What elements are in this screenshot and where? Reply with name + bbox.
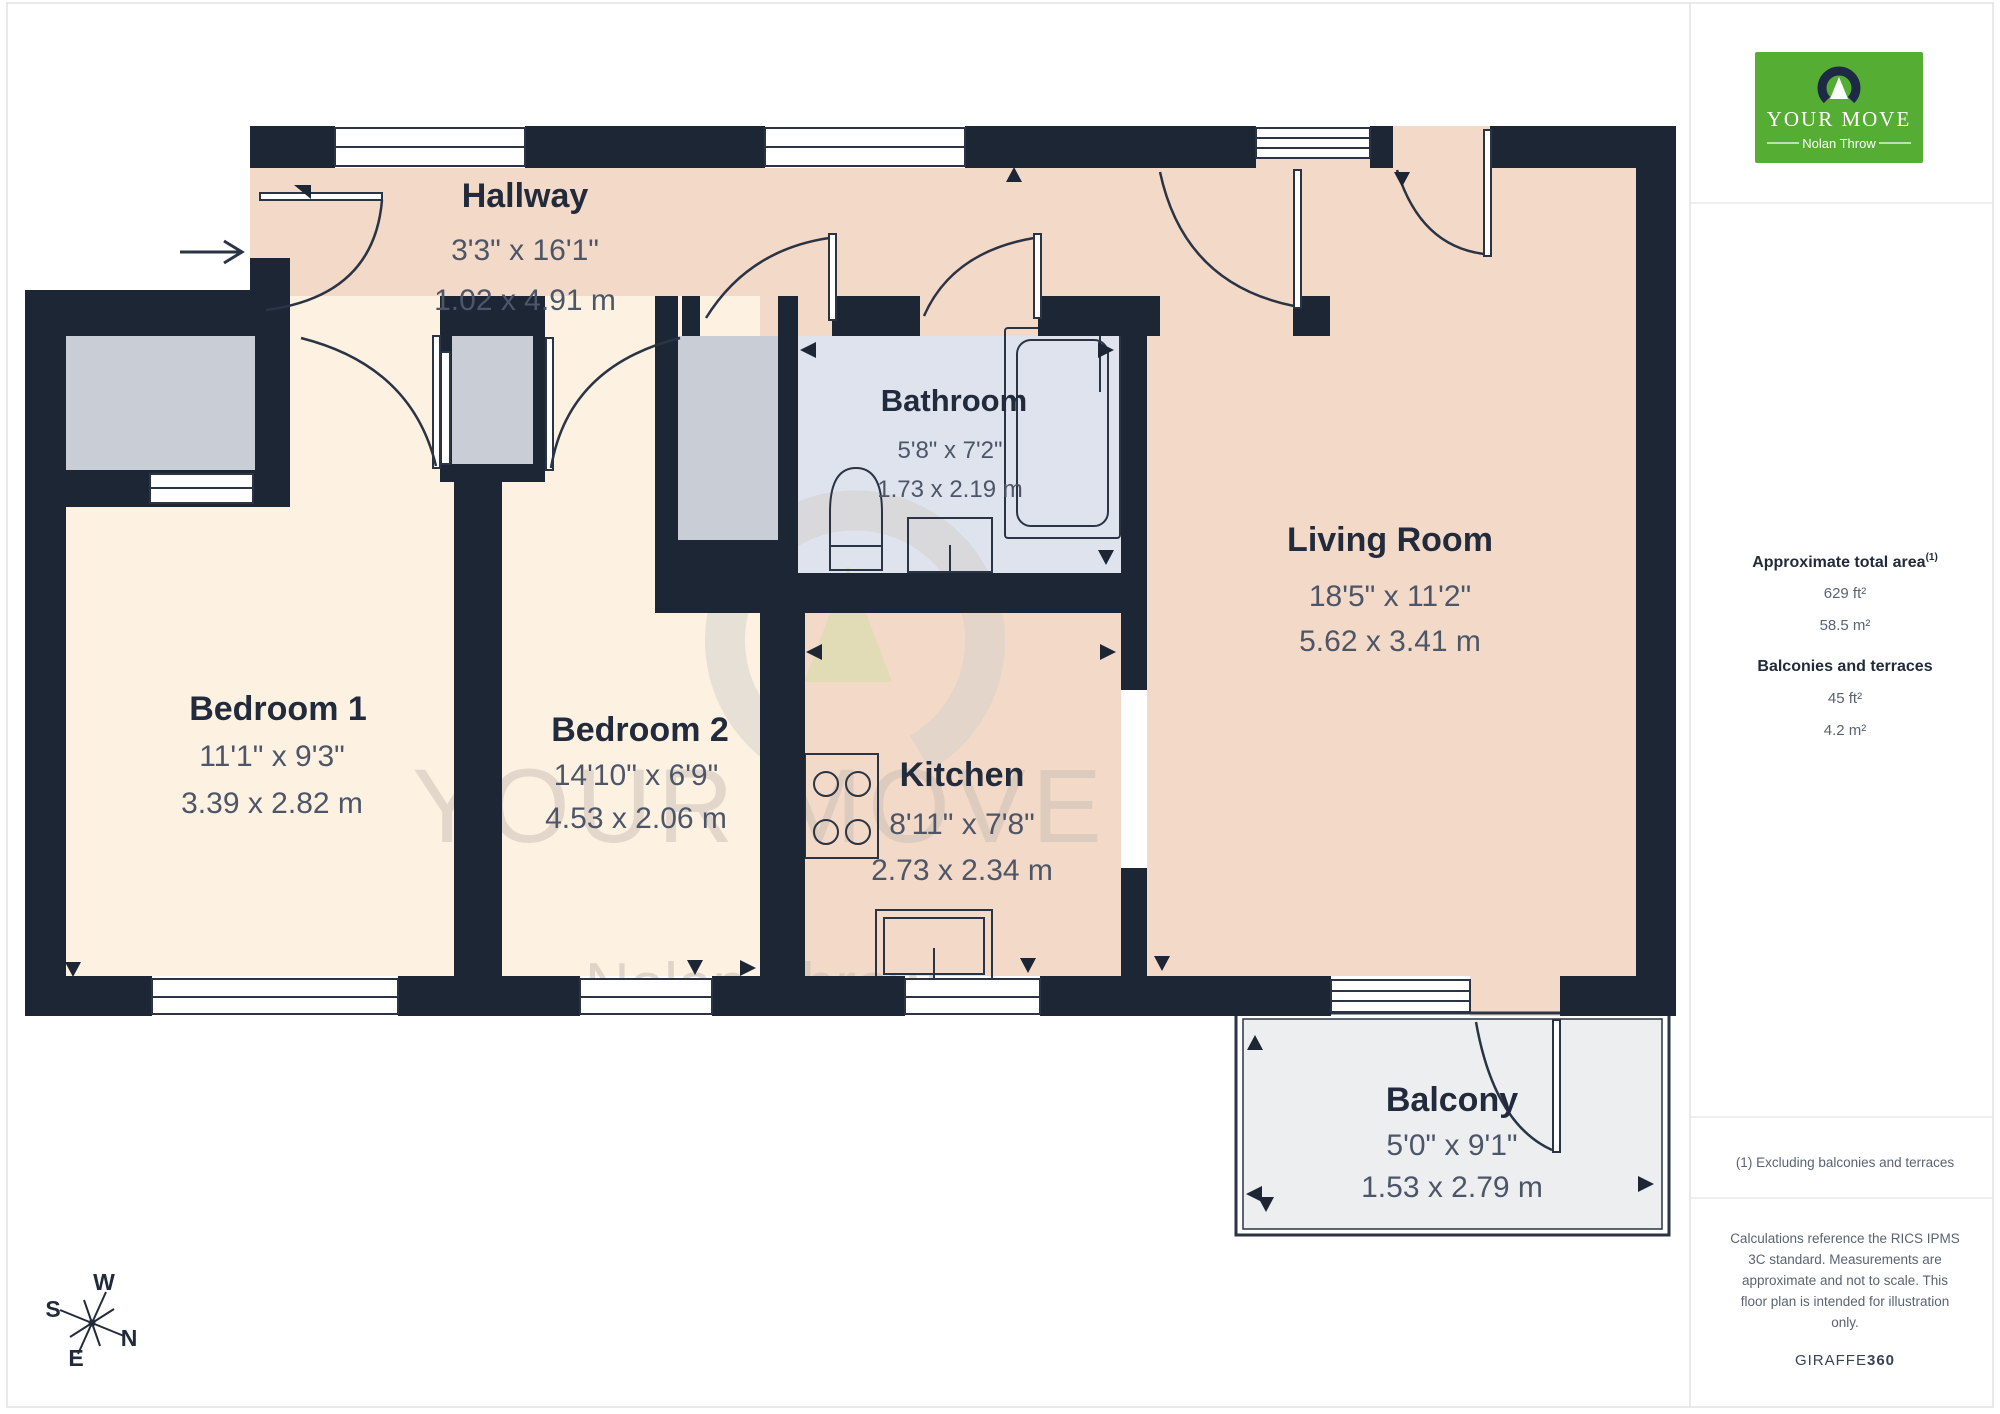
hallway-name: Hallway <box>462 177 589 215</box>
closet1-hatch <box>150 474 253 503</box>
entry-arrow-icon <box>180 241 242 263</box>
balcony-imperial: 5'0" x 9'1" <box>1386 1129 1517 1162</box>
logo-sub-text: Nolan Throw <box>1802 136 1876 151</box>
label-living: Living Room 18'5" x 11'2" 5.62 x 3.41 m <box>1287 521 1493 658</box>
bathroom-imperial: 5'8" x 7'2" <box>898 437 1003 464</box>
balconies-ft: 45 ft² <box>1828 690 1862 707</box>
hallway-metric: 1.02 x 4.91 m <box>434 284 616 317</box>
svg-text:approximate and not to scale.: approximate and not to scale. This <box>1742 1273 1948 1288</box>
bathroom-metric: 1.73 x 2.19 m <box>877 476 1022 503</box>
sidebar: YOUR MOVE Nolan Throw Approximate total … <box>1690 3 1993 1407</box>
bedroom2-metric: 4.53 x 2.06 m <box>545 802 727 835</box>
balconies-label: Balconies and terraces <box>1757 658 1932 675</box>
svg-text:Calculations reference the RIC: Calculations reference the RICS IPMS <box>1730 1231 1960 1246</box>
svg-text:only.: only. <box>1831 1315 1859 1330</box>
bedroom1-name: Bedroom 1 <box>189 690 367 728</box>
window-top-3 <box>1256 128 1370 158</box>
compass-e: E <box>68 1345 83 1371</box>
disclaimer: Calculations reference the RICS IPMS 3C … <box>1730 1231 1960 1330</box>
bathroom-name: Bathroom <box>881 383 1027 418</box>
svg-text:3C standard. Measurements are: 3C standard. Measurements are <box>1748 1252 1942 1267</box>
living-metric: 5.62 x 3.41 m <box>1299 625 1481 658</box>
hallway-imperial: 3'3" x 16'1" <box>451 234 599 267</box>
kitchen-metric: 2.73 x 2.34 m <box>871 854 1053 887</box>
window-balcony <box>1331 980 1470 1012</box>
bedroom1-imperial: 11'1" x 9'3" <box>199 740 345 773</box>
bedroom2-name: Bedroom 2 <box>551 711 729 749</box>
total-area-m: 58.5 m² <box>1820 617 1871 634</box>
label-bedroom2: Bedroom 2 14'10" x 6'9" 4.53 x 2.06 m <box>545 711 729 835</box>
balcony-metric: 1.53 x 2.79 m <box>1361 1171 1543 1204</box>
balconies-m: 4.2 m² <box>1824 722 1867 739</box>
window-bottom-bedroom2 <box>580 979 712 1014</box>
footnote: (1) Excluding balconies and terraces <box>1736 1155 1955 1170</box>
total-area-ft: 629 ft² <box>1824 585 1867 602</box>
window-bottom-bedroom1 <box>152 979 398 1014</box>
compass-w: W <box>93 1269 115 1295</box>
kitchen-name: Kitchen <box>900 756 1025 794</box>
agency-logo: YOUR MOVE Nolan Throw <box>1755 52 1923 163</box>
compass-icon: W S N E <box>45 1269 137 1371</box>
label-balcony: Balcony 5'0" x 9'1" 1.53 x 2.79 m <box>1361 1081 1543 1204</box>
compass-n: N <box>121 1325 138 1351</box>
total-area-label: Approximate total area(1) <box>1752 552 1938 571</box>
window-top-1 <box>335 128 525 166</box>
floorplan-canvas: YOUR MOVE Nolan Throw <box>0 0 2000 1414</box>
floorplan-page: YOUR MOVE Nolan Throw <box>0 0 2000 1414</box>
window-top-2 <box>765 128 965 166</box>
bedroom1-metric: 3.39 x 2.82 m <box>181 787 363 820</box>
area-summary: Approximate total area(1) 629 ft² 58.5 m… <box>1752 552 1938 739</box>
svg-text:floor plan is intended for ill: floor plan is intended for illustration <box>1741 1294 1950 1309</box>
living-name: Living Room <box>1287 521 1493 559</box>
living-imperial: 18'5" x 11'2" <box>1309 580 1471 613</box>
kitchen-imperial: 8'11" x 7'8" <box>889 808 1035 841</box>
closet2-hatch <box>441 352 450 464</box>
logo-brand-text: YOUR MOVE <box>1767 107 1912 131</box>
label-bedroom1: Bedroom 1 11'1" x 9'3" 3.39 x 2.82 m <box>181 690 367 820</box>
compass-s: S <box>45 1296 60 1322</box>
window-bottom-kitchen <box>905 979 1040 1014</box>
balcony-name: Balcony <box>1386 1081 1518 1119</box>
bedroom2-imperial: 14'10" x 6'9" <box>554 759 719 792</box>
giraffe360-credit: GIRAFFE360 <box>1795 1352 1895 1369</box>
